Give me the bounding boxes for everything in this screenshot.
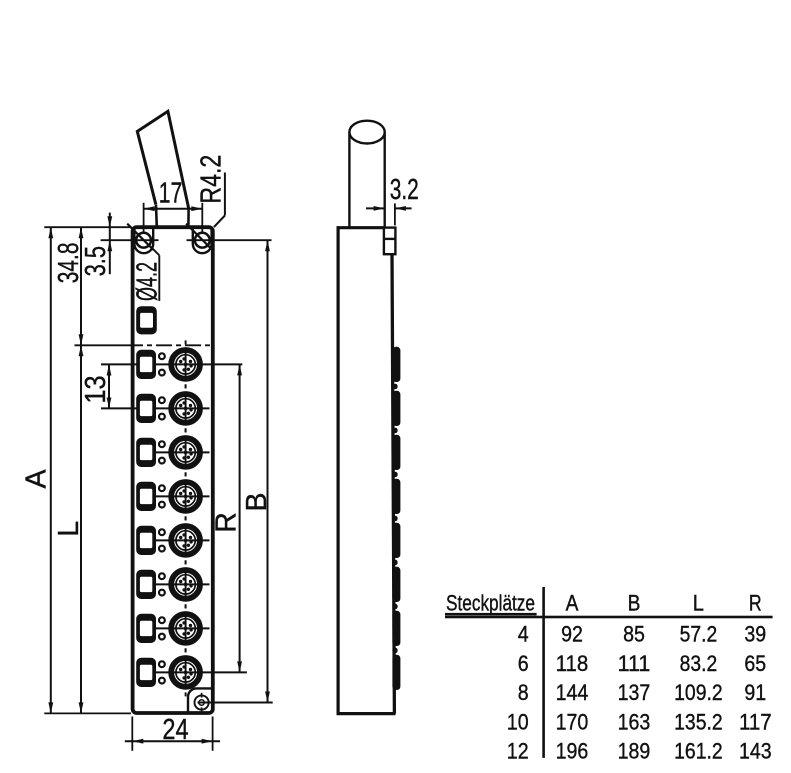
svg-text:135.2: 135.2 (674, 709, 723, 734)
svg-text:13: 13 (80, 375, 112, 403)
svg-text:R: R (210, 512, 242, 533)
svg-text:163: 163 (618, 709, 651, 734)
svg-text:6: 6 (518, 651, 529, 676)
svg-text:85: 85 (623, 622, 645, 647)
svg-text:143: 143 (739, 739, 772, 764)
svg-text:B: B (628, 591, 641, 616)
svg-text:196: 196 (556, 739, 589, 764)
svg-text:L: L (693, 591, 704, 616)
svg-text:39: 39 (744, 622, 766, 647)
svg-text:A: A (566, 591, 579, 616)
svg-text:137: 137 (618, 680, 651, 705)
svg-text:117: 117 (739, 709, 772, 734)
svg-text:65: 65 (744, 651, 766, 676)
svg-text:Ø4.2: Ø4.2 (132, 262, 164, 301)
svg-text:B: B (241, 492, 273, 511)
svg-text:170: 170 (556, 709, 589, 734)
svg-text:10: 10 (507, 709, 529, 734)
svg-text:3.2: 3.2 (390, 174, 419, 206)
svg-text:Steckplätze: Steckplätze (446, 591, 535, 616)
svg-text:R: R (749, 591, 762, 616)
svg-text:R4.2: R4.2 (196, 155, 228, 204)
svg-text:144: 144 (556, 680, 589, 705)
svg-text:111: 111 (618, 651, 651, 676)
svg-text:A: A (21, 469, 53, 489)
svg-text:109.2: 109.2 (674, 680, 723, 705)
svg-text:4: 4 (518, 622, 529, 647)
svg-text:92: 92 (561, 622, 583, 647)
svg-text:8: 8 (518, 680, 529, 705)
svg-text:91: 91 (744, 680, 766, 705)
svg-text:118: 118 (556, 651, 589, 676)
svg-text:83.2: 83.2 (680, 651, 718, 676)
svg-text:L: L (53, 521, 85, 537)
svg-text:189: 189 (618, 739, 651, 764)
svg-text:12: 12 (507, 739, 529, 764)
svg-text:3.5: 3.5 (80, 246, 112, 277)
svg-text:24: 24 (162, 714, 188, 746)
svg-text:161.2: 161.2 (674, 739, 723, 764)
svg-text:17: 17 (159, 177, 183, 209)
svg-text:57.2: 57.2 (680, 622, 718, 647)
